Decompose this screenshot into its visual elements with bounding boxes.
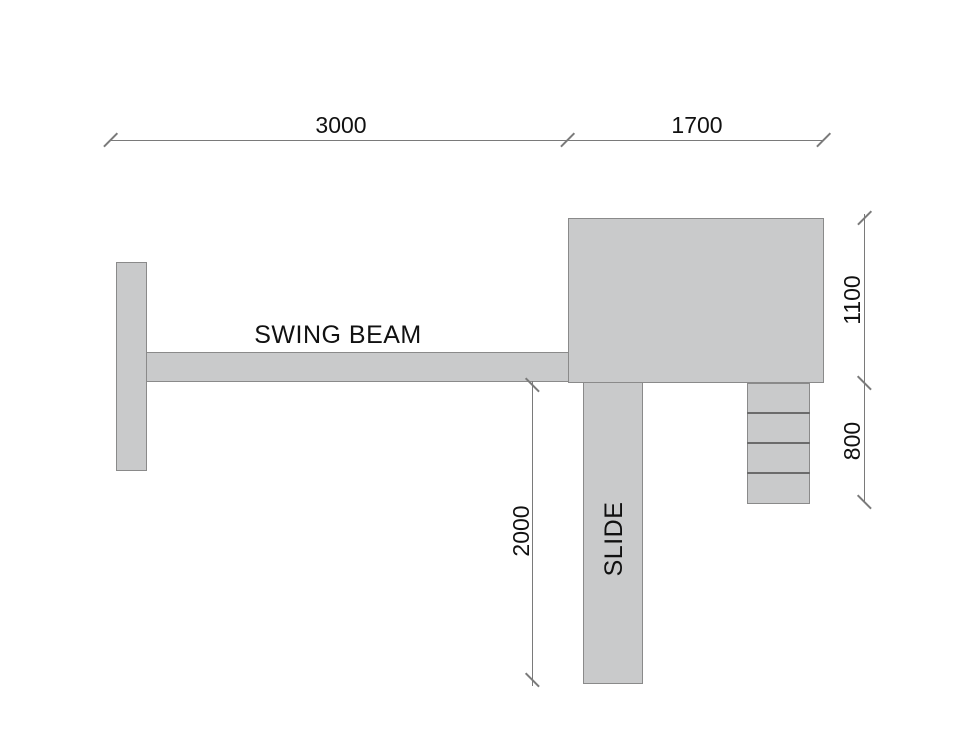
dimension-line-top: [110, 140, 823, 141]
ladder-rung-line: [747, 472, 810, 474]
ladder-steps-shape: [747, 383, 810, 504]
slide-label: SLIDE: [600, 459, 628, 619]
swing-post-shape: [116, 262, 147, 471]
swing-beam-shape: [146, 352, 569, 382]
dimension-value-platform-height: 1100: [838, 230, 866, 370]
dimension-value-platform-span: 1700: [637, 112, 757, 138]
dimension-value-slide-height: 2000: [507, 461, 535, 601]
cad-drawing-canvas: SWING BEAM SLIDE 3000 1700 1100 800 2000: [0, 0, 970, 739]
ladder-rung-line: [747, 442, 810, 444]
dimension-value-swing-span: 3000: [281, 112, 401, 138]
ladder-rung-line: [747, 412, 810, 414]
swing-beam-label: SWING BEAM: [213, 322, 463, 349]
platform-shape: [568, 218, 824, 383]
dimension-value-ladder-height: 800: [838, 371, 866, 511]
